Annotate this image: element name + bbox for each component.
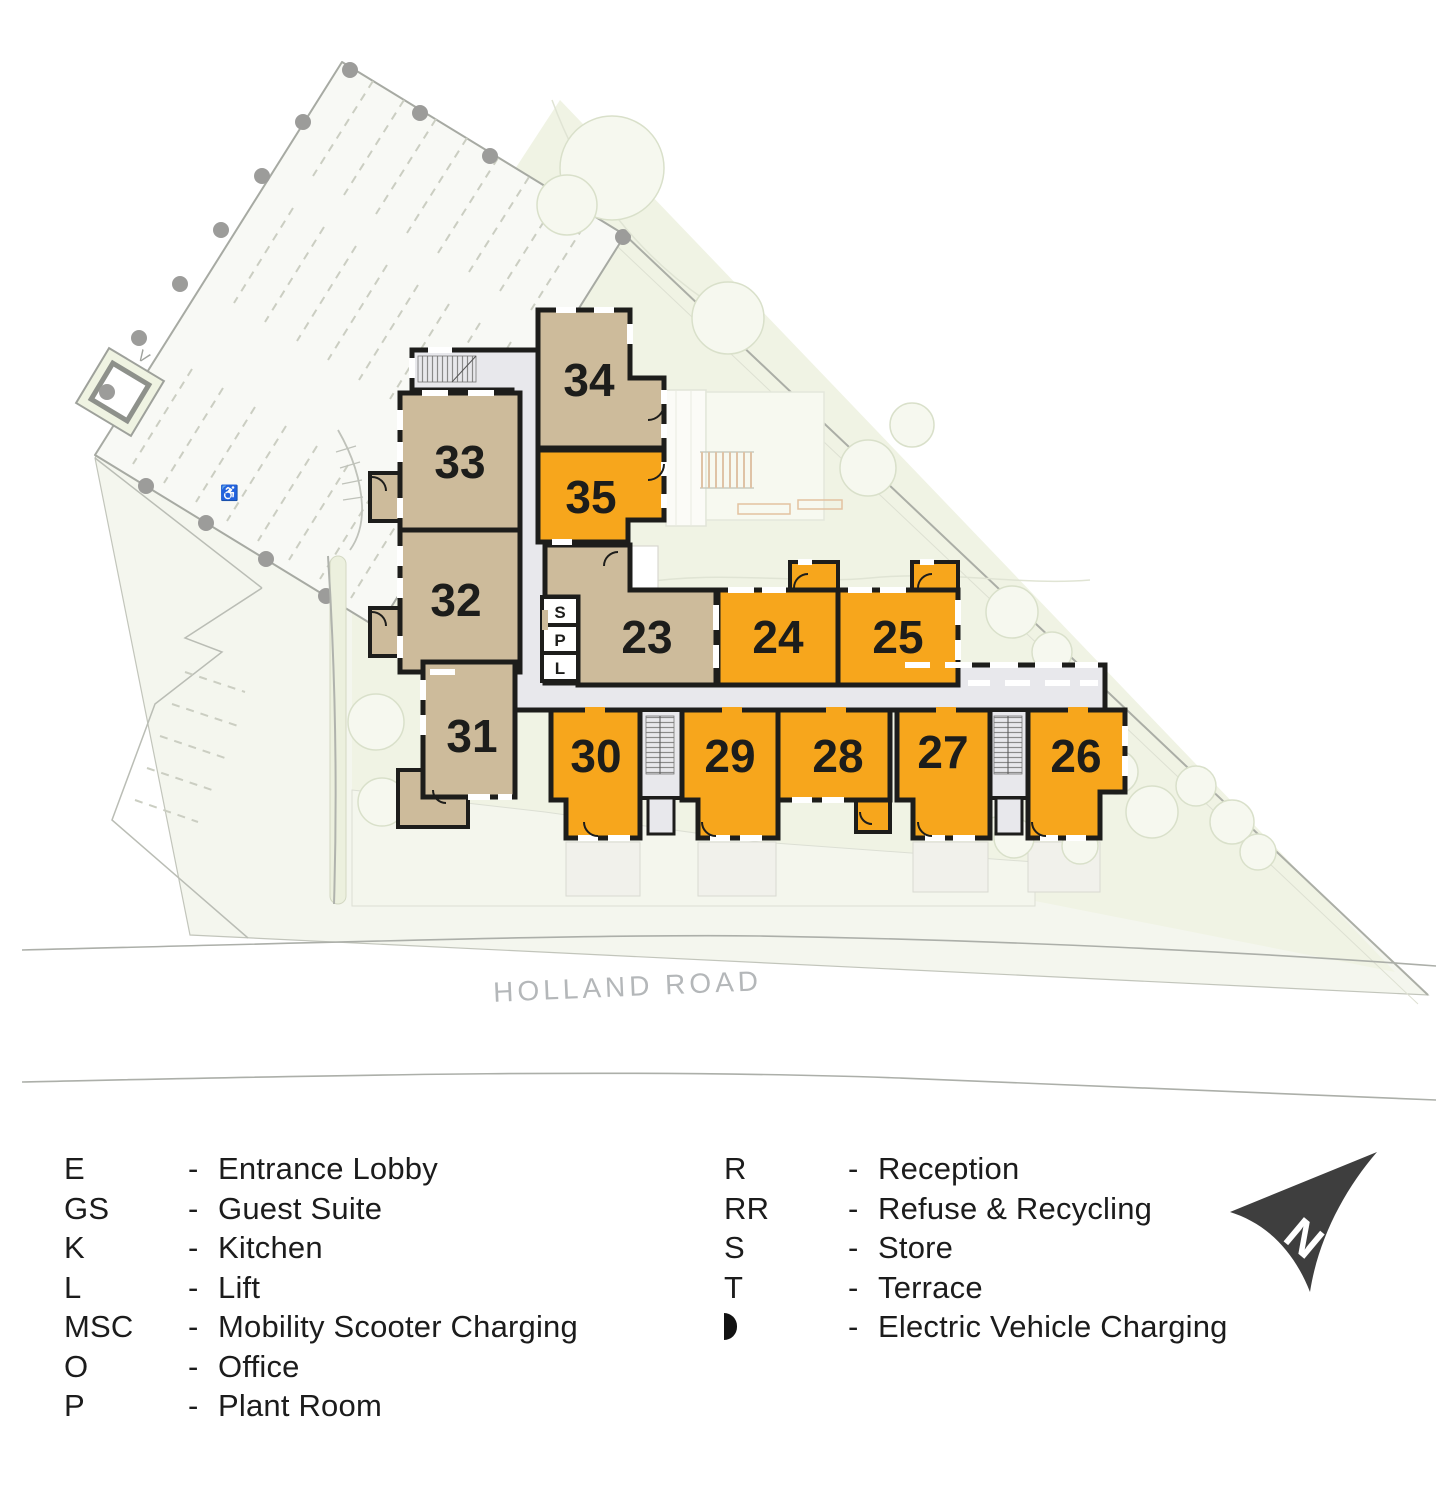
legend-item-plant-room: P - Plant Room — [64, 1387, 382, 1424]
legend-separator: - — [188, 1387, 218, 1424]
legend-label: Store — [878, 1229, 953, 1266]
legend-separator: - — [188, 1348, 218, 1385]
legend-label: Reception — [878, 1150, 1019, 1187]
legend-abbr: O — [64, 1348, 188, 1385]
legend-item-terrace: T - Terrace — [724, 1269, 983, 1306]
accessible-parking-icon: ♿ — [220, 484, 239, 502]
ev-charging-icon — [724, 1313, 737, 1340]
legend-separator: - — [848, 1308, 878, 1345]
unit-29-label: 29 — [704, 730, 755, 782]
north-arrow-icon: N — [1230, 1152, 1377, 1292]
legend-abbr: R — [724, 1150, 848, 1187]
unit-31-label: 31 — [446, 710, 497, 762]
legend-label: Entrance Lobby — [218, 1150, 438, 1187]
legend-abbr: L — [64, 1269, 188, 1306]
unit-24-porch — [790, 562, 838, 590]
legend-label: Guest Suite — [218, 1190, 382, 1227]
legend-abbr: S — [724, 1229, 848, 1266]
legend-label: Kitchen — [218, 1229, 323, 1266]
legend-separator: - — [188, 1190, 218, 1227]
legend-separator: - — [848, 1150, 878, 1187]
site-plan-page: V ♿ — [0, 0, 1440, 1504]
unit-33-porch — [370, 473, 400, 521]
legend-label: Mobility Scooter Charging — [218, 1308, 578, 1345]
hedge — [330, 556, 346, 904]
lift-label: L — [555, 659, 565, 678]
legend-separator: - — [188, 1229, 218, 1266]
core-rooms: S P L — [542, 597, 578, 681]
legend-abbr: RR — [724, 1190, 848, 1227]
legend-item-office: O - Office — [64, 1348, 300, 1385]
store-label: S — [554, 603, 565, 622]
legend-label: Plant Room — [218, 1387, 382, 1424]
legend-item-mobility-scooter-charging: MSC - Mobility Scooter Charging — [64, 1308, 578, 1345]
legend-abbr: K — [64, 1229, 188, 1266]
plant-room-label: P — [554, 631, 565, 650]
unit-33-label: 33 — [434, 436, 485, 488]
legend-label: Lift — [218, 1269, 260, 1306]
legend-item-refuse-recycling: RR - Refuse & Recycling — [724, 1190, 1152, 1227]
legend-abbr: E — [64, 1150, 188, 1187]
unit-32-porch — [370, 608, 400, 656]
legend-separator: - — [848, 1269, 878, 1306]
legend-item-store: S - Store — [724, 1229, 953, 1266]
legend-item-kitchen: K - Kitchen — [64, 1229, 323, 1266]
unit-34-label: 34 — [563, 354, 615, 406]
unit-24-label: 24 — [752, 611, 804, 663]
unit-23-label: 23 — [621, 611, 672, 663]
legend-separator: - — [848, 1229, 878, 1266]
legend-label: Office — [218, 1348, 300, 1385]
unit-30-label: 30 — [570, 730, 621, 782]
legend-abbr: P — [64, 1387, 188, 1424]
legend-separator: - — [188, 1269, 218, 1306]
legend-item-entrance-lobby: E - Entrance Lobby — [64, 1150, 438, 1187]
unit-26-label: 26 — [1050, 730, 1101, 782]
legend-label: Refuse & Recycling — [878, 1190, 1152, 1227]
legend-abbr: T — [724, 1269, 848, 1306]
unit-35-label: 35 — [565, 471, 616, 523]
legend-separator: - — [848, 1190, 878, 1227]
legend-item-reception: R - Reception — [724, 1150, 1019, 1187]
legend-separator: - — [188, 1150, 218, 1187]
legend-separator: - — [188, 1308, 218, 1345]
legend-label: Terrace — [878, 1269, 983, 1306]
unit-32-label: 32 — [430, 574, 481, 626]
legend-abbr: MSC — [64, 1308, 188, 1345]
legend-abbr: GS — [64, 1190, 188, 1227]
legend-label: Electric Vehicle Charging — [878, 1308, 1228, 1345]
legend-item-ev-charging: - Electric Vehicle Charging — [724, 1308, 1228, 1348]
legend-item-lift: L - Lift — [64, 1269, 260, 1306]
road-label: HOLLAND ROAD — [493, 965, 763, 1008]
unit-28-label: 28 — [812, 730, 863, 782]
unit-27-label: 27 — [917, 726, 968, 778]
unit-25-label: 25 — [872, 611, 923, 663]
legend-item-guest-suite: GS - Guest Suite — [64, 1190, 382, 1227]
